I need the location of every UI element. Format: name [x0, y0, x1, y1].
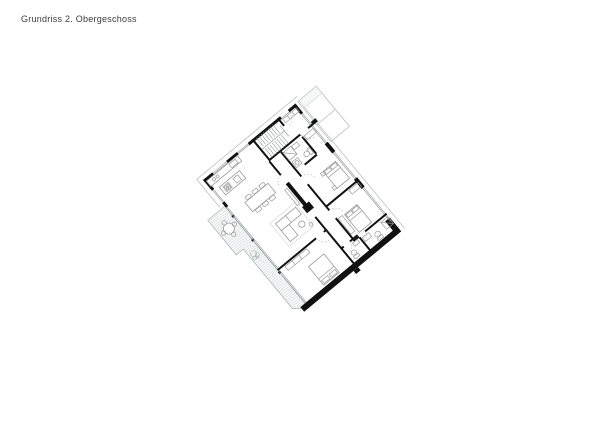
kitchen: [206, 156, 251, 199]
roof-overhang-lines: [197, 96, 406, 311]
wardrobe: [285, 249, 310, 271]
fireplace-wall: [286, 182, 308, 208]
bedroom-2: [329, 183, 384, 238]
toilet: [374, 230, 382, 238]
floor-plan-drawing: [0, 0, 600, 424]
dining-area: [242, 180, 278, 215]
toilet: [303, 150, 311, 158]
sink: [362, 233, 371, 242]
floor-plan-page: { "title": { "text": "Grundriss 2. Oberg…: [0, 0, 600, 424]
toilet: [350, 249, 357, 256]
wardrobe: [304, 128, 316, 140]
wardrobe: [349, 183, 361, 195]
interior-walls: [203, 104, 398, 305]
coffee-table: [297, 220, 306, 229]
